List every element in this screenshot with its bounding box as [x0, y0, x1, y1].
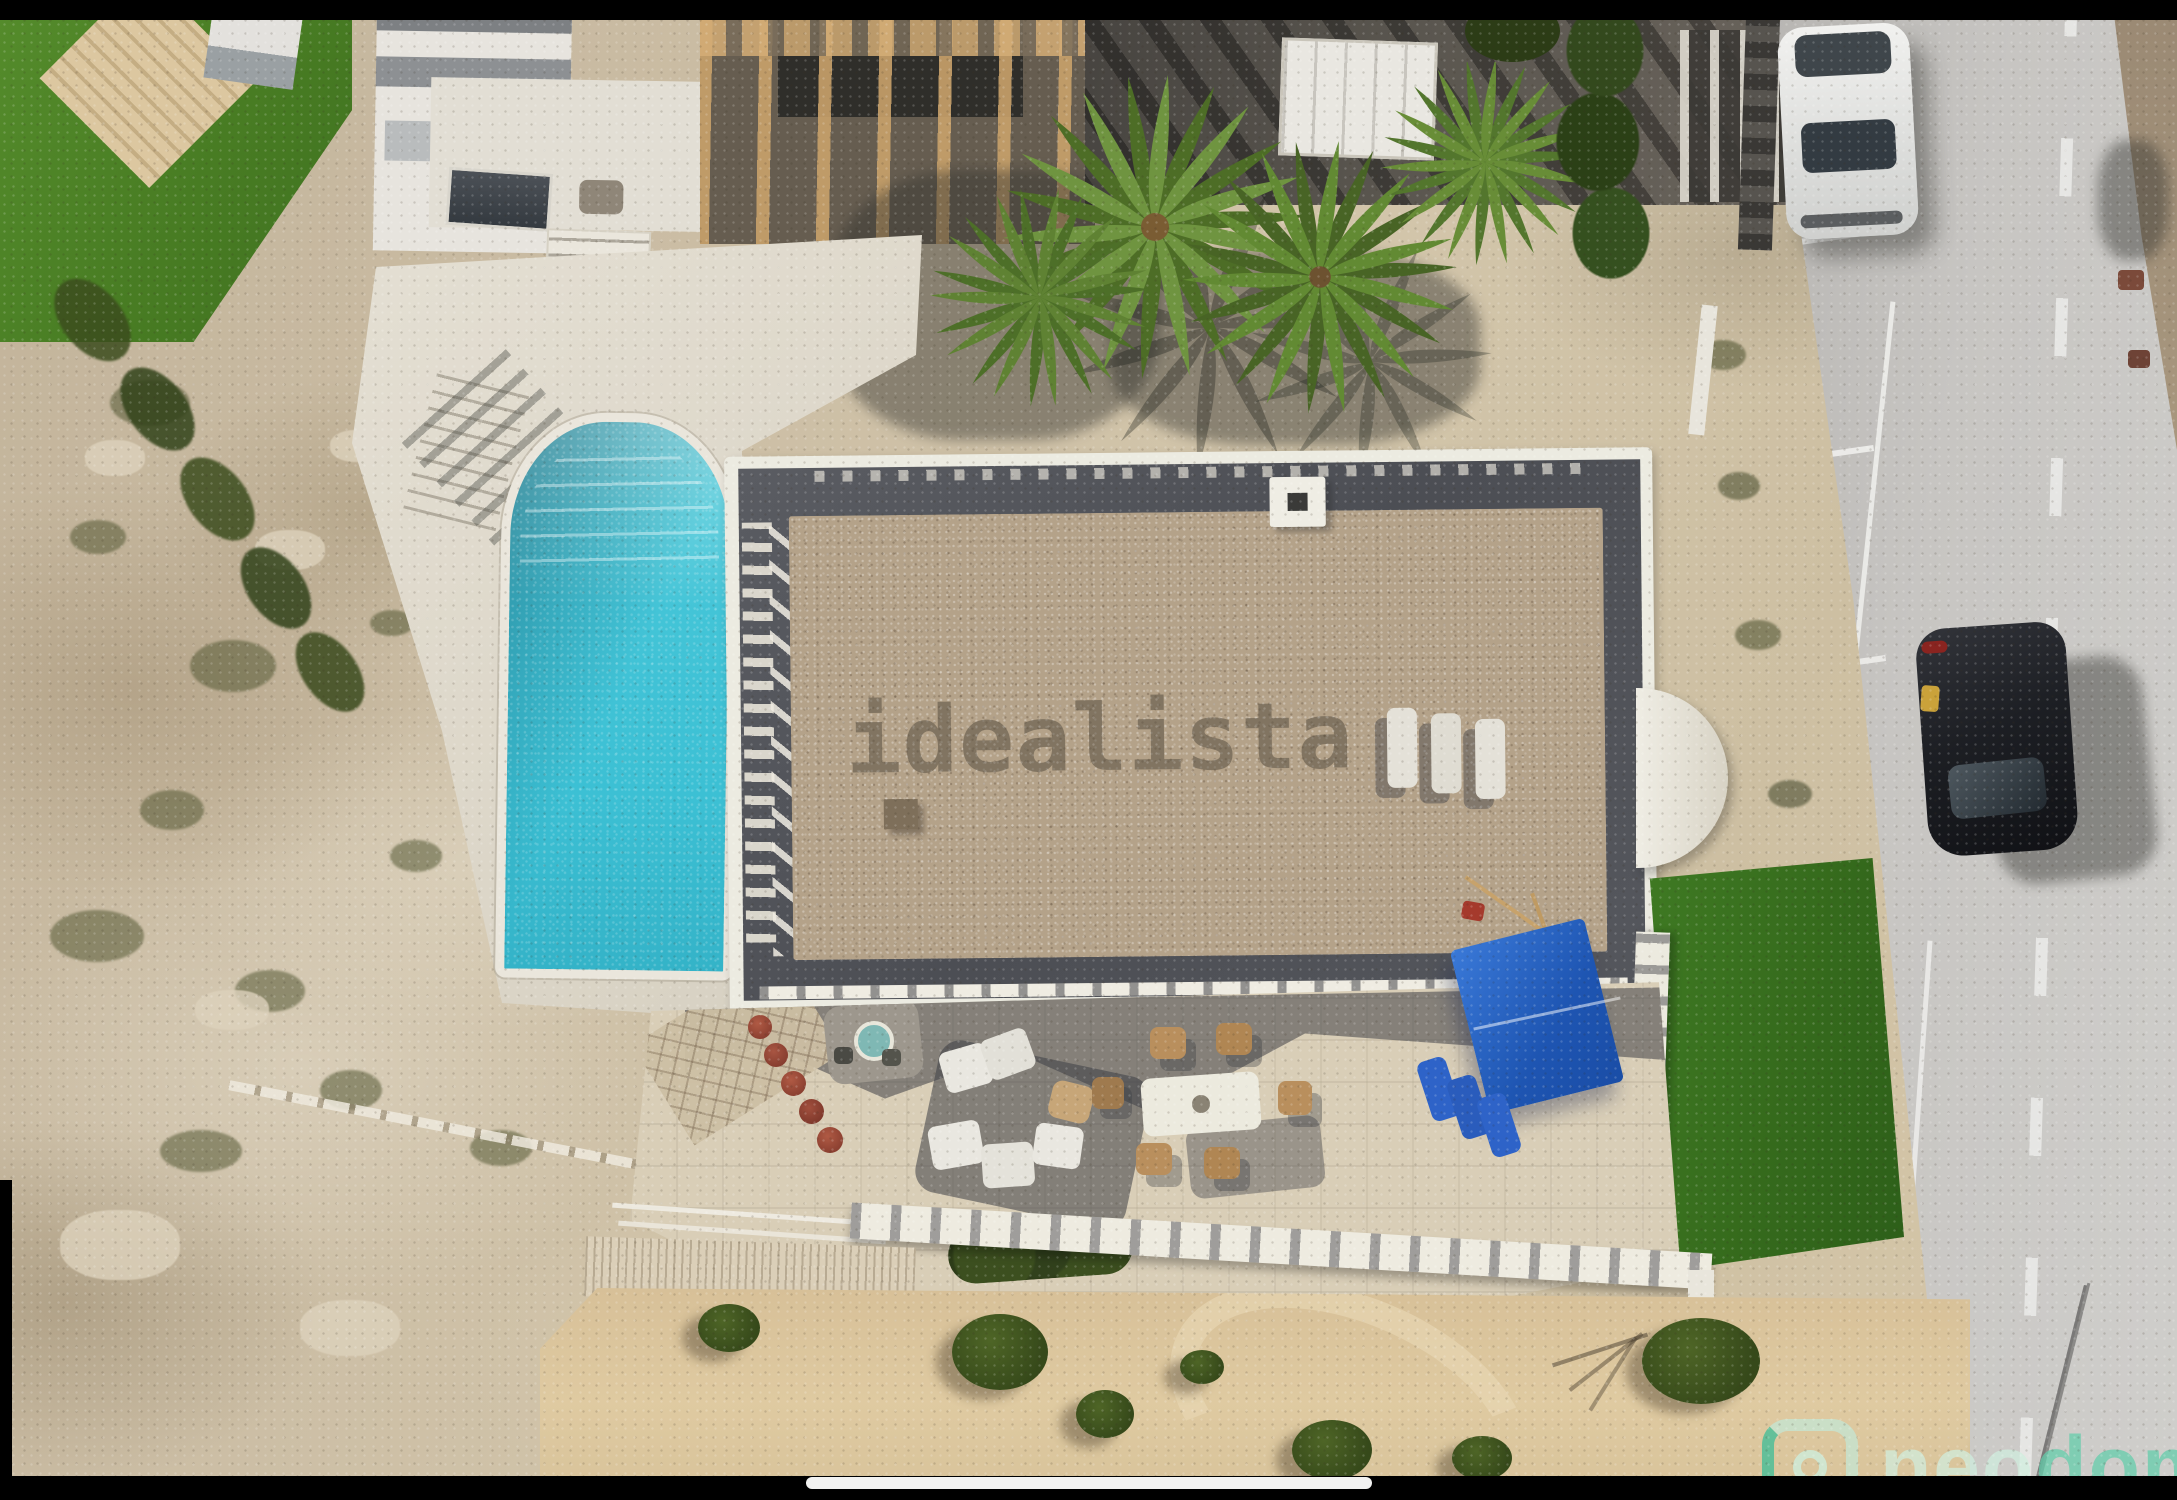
construction-terrace	[429, 77, 762, 233]
balustrade-top	[814, 463, 1582, 482]
verge-stone	[2128, 350, 2150, 368]
boundary-fence-post	[1688, 305, 1718, 436]
terracotta-pot	[799, 1099, 824, 1124]
pool-steps	[520, 435, 721, 566]
utility-wire	[2032, 1285, 2087, 1476]
rock	[330, 430, 384, 462]
terrace-rail	[618, 1221, 886, 1245]
scrub-patch	[190, 640, 276, 692]
garden-bush	[1452, 1436, 1512, 1476]
hedge	[165, 444, 269, 555]
verge-shadow	[2098, 140, 2168, 260]
dark-suv	[1914, 620, 2080, 858]
deck-step-lines	[403, 363, 531, 532]
lawn-topleft	[0, 20, 352, 342]
rock	[300, 1300, 400, 1356]
idealista-watermark: idealista	[846, 682, 1355, 794]
dining-chair	[1150, 1027, 1186, 1059]
neodom-watermark: neodom	[1762, 1418, 2177, 1476]
sun-lounger	[1475, 719, 1506, 799]
rock	[195, 990, 269, 1030]
sofa-cushion	[937, 1041, 995, 1095]
roadside-bush	[1700, 340, 1746, 370]
sofa-shadow	[911, 1036, 1154, 1232]
pergola-beams	[700, 20, 1095, 244]
roof-band	[384, 120, 545, 163]
railing-shadow	[396, 343, 615, 564]
hedge	[1465, 20, 1560, 62]
bistro-patch	[822, 998, 925, 1086]
letterbox-left-sliver	[0, 1180, 12, 1476]
scrub-patch	[320, 1070, 382, 1110]
balustrade-bottom	[760, 977, 1628, 999]
villa-apse	[1636, 688, 1728, 868]
parking-strip	[1085, 20, 1797, 205]
hillside-stairs	[228, 1080, 691, 1179]
canopy-fold-line	[1473, 996, 1620, 1030]
roof-box	[884, 799, 918, 829]
parking-bay-line	[1814, 655, 1886, 671]
roof-shadow-band	[738, 459, 1646, 1000]
roof-band	[376, 56, 571, 89]
garden-bush	[1992, 1416, 2058, 1466]
roof-gravel: idealista	[789, 508, 1608, 960]
hedge	[105, 354, 209, 465]
terracotta-pot	[817, 1127, 843, 1153]
rock	[85, 440, 145, 476]
suv-windshield	[1947, 756, 2048, 820]
suv-side-item	[1920, 685, 1940, 712]
scrub-patch	[110, 380, 190, 426]
roadside-bush	[1815, 1150, 1859, 1178]
dining-chair	[1216, 1023, 1252, 1055]
dining-chair	[1204, 1147, 1240, 1179]
garden-bush	[1292, 1420, 1372, 1476]
home-indicator[interactable]	[806, 1477, 1372, 1489]
neodom-text: neodom	[1880, 1418, 2177, 1476]
dining-chair	[1278, 1081, 1312, 1115]
road	[1740, 20, 2177, 1476]
dining-table	[1140, 1071, 1262, 1137]
terracotta-pot	[748, 1015, 772, 1039]
car-sunroof	[1794, 31, 1892, 78]
sofa-cushion	[978, 1026, 1037, 1082]
branch-shadow	[1589, 1336, 1638, 1411]
palm-shadow-ground	[830, 170, 1160, 440]
scrub-patch	[390, 840, 442, 872]
blue-canopy	[1450, 918, 1625, 1114]
rock	[60, 1210, 180, 1280]
branch-shadow	[1552, 1333, 1648, 1368]
blue-lounger	[1475, 1091, 1523, 1159]
dining-chair	[1092, 1077, 1124, 1109]
gate-fence	[1680, 30, 1792, 202]
palm-trees	[900, 62, 1600, 482]
garden-lawn	[1642, 858, 1904, 1270]
table-centerpiece	[1192, 1095, 1210, 1113]
neodom-logo-icon	[1762, 1419, 1858, 1477]
canopy-frame-pole	[1530, 893, 1594, 1059]
villa-roof: idealista	[724, 447, 1658, 1017]
hedge	[226, 534, 325, 641]
stone-ramp	[632, 953, 843, 1146]
terracotta-pot	[764, 1043, 788, 1067]
beam-row	[700, 20, 1095, 244]
scrub-patch	[50, 910, 144, 962]
garden-bush	[952, 1314, 1048, 1390]
shade-stripes	[1085, 20, 1797, 205]
dark-roof	[778, 20, 1023, 117]
construction-building	[373, 20, 572, 254]
balustrade-left	[742, 522, 776, 942]
stone-slab	[203, 20, 302, 90]
garden-bush	[1180, 1350, 1224, 1384]
solar-panel	[445, 167, 553, 232]
scrub-patch	[470, 1130, 532, 1166]
house-shadow	[685, 987, 1685, 1142]
cypress-tree	[1545, 20, 1665, 290]
car-rear	[1800, 210, 1903, 228]
sunlit-ground	[540, 1288, 1970, 1476]
garden-bush	[1076, 1390, 1134, 1438]
roadside-bush	[1735, 620, 1781, 650]
fence-dark	[1738, 20, 1780, 251]
terrace	[630, 975, 1680, 1335]
roof-band	[377, 20, 572, 34]
planter-hedge	[946, 1217, 1134, 1286]
lane-dashes	[2019, 20, 2077, 1476]
bistro-chair	[834, 1047, 853, 1064]
balustrade-post	[1688, 1270, 1714, 1320]
blue-lounger	[1445, 1073, 1493, 1141]
balustrade-bottom-run	[850, 1202, 1713, 1289]
balustrade-left-hatch	[769, 526, 845, 957]
roadside-bush	[1768, 780, 1812, 808]
scrub-patch	[70, 520, 126, 554]
wooden-walkway	[40, 20, 256, 188]
aerial-photo: idealista	[0, 20, 2177, 1476]
path-curve	[1129, 1230, 1572, 1476]
roadside-verge	[2088, 20, 2177, 450]
road-edge-line	[1888, 941, 1932, 1476]
bistro-chair	[882, 1049, 901, 1066]
pool-deck	[340, 235, 940, 1035]
sofa-cushion	[927, 1119, 986, 1171]
road-crack	[2037, 1283, 2091, 1476]
sun-lounger	[1431, 713, 1462, 793]
red-item	[1461, 900, 1486, 922]
suv-taillight	[1921, 640, 1948, 654]
construction-debris	[579, 180, 624, 215]
sofa-cushion	[1031, 1122, 1084, 1170]
car-windshield	[1801, 119, 1897, 174]
beam-header	[700, 20, 1095, 56]
suv-shadow	[1979, 652, 2161, 888]
white-car	[1777, 22, 1920, 241]
swimming-pool	[495, 411, 740, 980]
scrub-patch	[160, 1130, 242, 1172]
garden-bush	[698, 1304, 760, 1352]
roadside-bush	[1792, 970, 1838, 1000]
pool-sparkle	[504, 420, 731, 971]
canopy-frame-pole	[1464, 875, 1589, 964]
stone-wall	[584, 1236, 916, 1307]
chimney	[1269, 477, 1326, 528]
scrub-patch	[370, 610, 414, 636]
dining-chair	[1136, 1143, 1172, 1175]
hedge	[39, 264, 146, 375]
white-shed	[1278, 37, 1438, 160]
chimney-flue	[1288, 493, 1308, 511]
terrace-rail	[612, 1203, 882, 1227]
palm-shadow-ground	[1110, 250, 1480, 445]
road-edge-line	[1826, 301, 1896, 918]
sun-lounger	[1387, 708, 1418, 788]
rock	[255, 530, 325, 570]
garden-bush	[1642, 1318, 1760, 1404]
letterbox-top	[0, 0, 2177, 20]
wicker-armchair	[1046, 1078, 1096, 1125]
scrub-patch	[140, 790, 204, 830]
paver-grid	[630, 975, 1680, 1335]
table-shadow	[1185, 1114, 1327, 1200]
blue-lounger	[1415, 1055, 1463, 1123]
roadside-bush	[1718, 472, 1760, 500]
sofa-cushion	[981, 1141, 1036, 1189]
stairs-top	[543, 228, 651, 358]
hedge	[282, 620, 379, 725]
parking-bay-line	[1792, 230, 1864, 246]
parking-bay-line	[1802, 445, 1874, 461]
phone-screenshot: idealista	[0, 0, 2177, 1500]
verge-stone	[2118, 270, 2144, 290]
balustrade-vertical	[1624, 932, 1670, 1285]
branch-shadow	[1569, 1332, 1644, 1392]
scrub-patch	[235, 970, 305, 1012]
terracotta-pot	[781, 1071, 806, 1096]
bistro-table	[854, 1021, 894, 1061]
